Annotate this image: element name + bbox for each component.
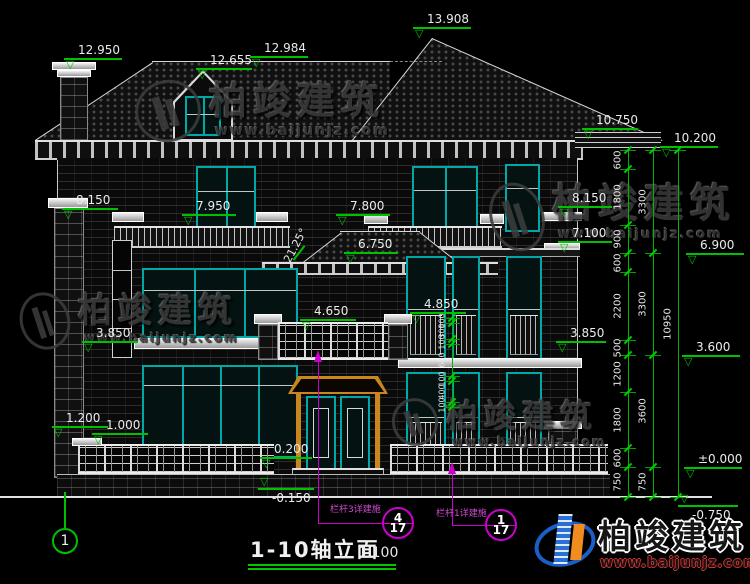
elevation-drawing-canvas: 21.25°: [0, 0, 750, 584]
elevation-value: 4.850: [424, 298, 458, 310]
dimension-value: 600: [613, 253, 624, 272]
elevation-line: [258, 488, 314, 490]
elevation-symbol: ▽: [262, 458, 270, 469]
dimension-value: 3300: [638, 189, 649, 214]
dimension-value: 1800: [613, 407, 624, 432]
elevation-symbol: ▽: [560, 207, 568, 218]
dimension-value: 600: [438, 352, 447, 367]
dimension-value: 3300: [638, 291, 649, 316]
callout-sheet-number: 17: [487, 524, 515, 536]
elevation-value: -0.150: [272, 492, 311, 504]
elevation-value: 1.200: [66, 412, 100, 424]
dimension-value: 750: [638, 472, 649, 491]
dimension-chain-line: [653, 150, 654, 497]
detail-callout-circle: 417: [382, 507, 414, 539]
elevation-value: 12.655: [210, 54, 252, 66]
dimension-value: 100: [438, 397, 447, 412]
detail-callout-circle: 117: [485, 509, 517, 541]
dimension-value: 500: [613, 338, 624, 357]
dimension-value: 3600: [638, 398, 649, 423]
elevation-value: 7.800: [350, 200, 384, 212]
dimension-value: 2200: [613, 293, 624, 318]
elevation-symbol: ▽: [412, 313, 420, 324]
elevation-symbol: ▽: [66, 59, 74, 70]
footer-logo: 柏竣建筑 www.baijunjz.com: [534, 508, 746, 578]
dimension-value: 750: [613, 472, 624, 491]
dimension-value: 600: [613, 150, 624, 169]
elevation-value: 6.750: [358, 238, 392, 250]
elevation-value: 13.908: [427, 13, 469, 25]
elevation-symbol: ▽: [662, 147, 670, 158]
elevation-value: 8.150: [572, 192, 606, 204]
callout-label: 栏杆1详建施: [436, 510, 487, 519]
elevation-value: 6.900: [700, 239, 734, 251]
callout-sheet-number: 17: [384, 522, 412, 534]
elevation-symbol: ▽: [54, 427, 62, 438]
elevation-symbol: ▽: [94, 434, 102, 445]
elevation-value: 3.600: [696, 341, 730, 353]
elevation-value: 12.984: [264, 42, 306, 54]
elevation-symbol: ▽: [346, 253, 354, 264]
elevation-value: 12.950: [78, 44, 120, 56]
elevation-value: 3.850: [96, 327, 130, 339]
elevation-symbol: ▽: [252, 57, 260, 68]
elevation-symbol: ▽: [688, 254, 696, 265]
elevation-symbol: ▽: [84, 342, 92, 353]
elevation-value: 3.850: [570, 327, 604, 339]
elevation-symbol: ▽: [184, 215, 192, 226]
dimension-chain-line: [452, 318, 453, 407]
elevation-line: [678, 505, 738, 507]
footer-url-text: www.baijunjz.com: [600, 556, 750, 570]
dimension-value: 900: [613, 229, 624, 248]
elevation-symbol: ▽: [558, 342, 566, 353]
elevation-symbol: ▽: [560, 242, 568, 253]
elevation-symbol: ▽: [584, 129, 592, 140]
elevation-symbol: ▽: [198, 69, 206, 80]
elevation-value: 10.750: [596, 114, 638, 126]
dimension-value: 600: [613, 448, 624, 467]
leader-line: [318, 360, 319, 523]
callout-label: 栏杆3详建施: [330, 506, 381, 515]
elevation-value: 7.100: [572, 227, 606, 239]
elevation-symbol: ▽: [64, 209, 72, 220]
elevation-value: ±0.000: [698, 453, 742, 465]
annotation-layer: ▽12.950▽12.655▽12.984▽13.908▽10.750▽10.2…: [0, 0, 750, 584]
dimension-value: 100: [438, 334, 447, 349]
dimension-chain-line: [678, 150, 679, 497]
elevation-symbol: ▽: [338, 215, 346, 226]
elevation-value: 0.200: [274, 443, 308, 455]
dimension-value: 1800: [613, 184, 624, 209]
elevation-value: 1.000: [106, 419, 140, 431]
elevation-symbol: ▽: [686, 468, 694, 479]
elevation-symbol: ▽: [260, 476, 268, 487]
elevation-value: 7.950: [196, 200, 230, 212]
footer-brand-text: 柏竣建筑: [598, 520, 746, 553]
dimension-value: 10950: [663, 308, 674, 340]
elevation-value: 4.650: [314, 305, 348, 317]
elevation-value: 10.200: [674, 132, 716, 144]
elevation-value: 8.150: [76, 194, 110, 206]
elevation-symbol: ▽: [684, 356, 692, 367]
dimension-value: 1200: [613, 361, 624, 386]
elevation-symbol: ▽: [415, 28, 423, 39]
elevation-symbol: ▽: [302, 320, 310, 331]
